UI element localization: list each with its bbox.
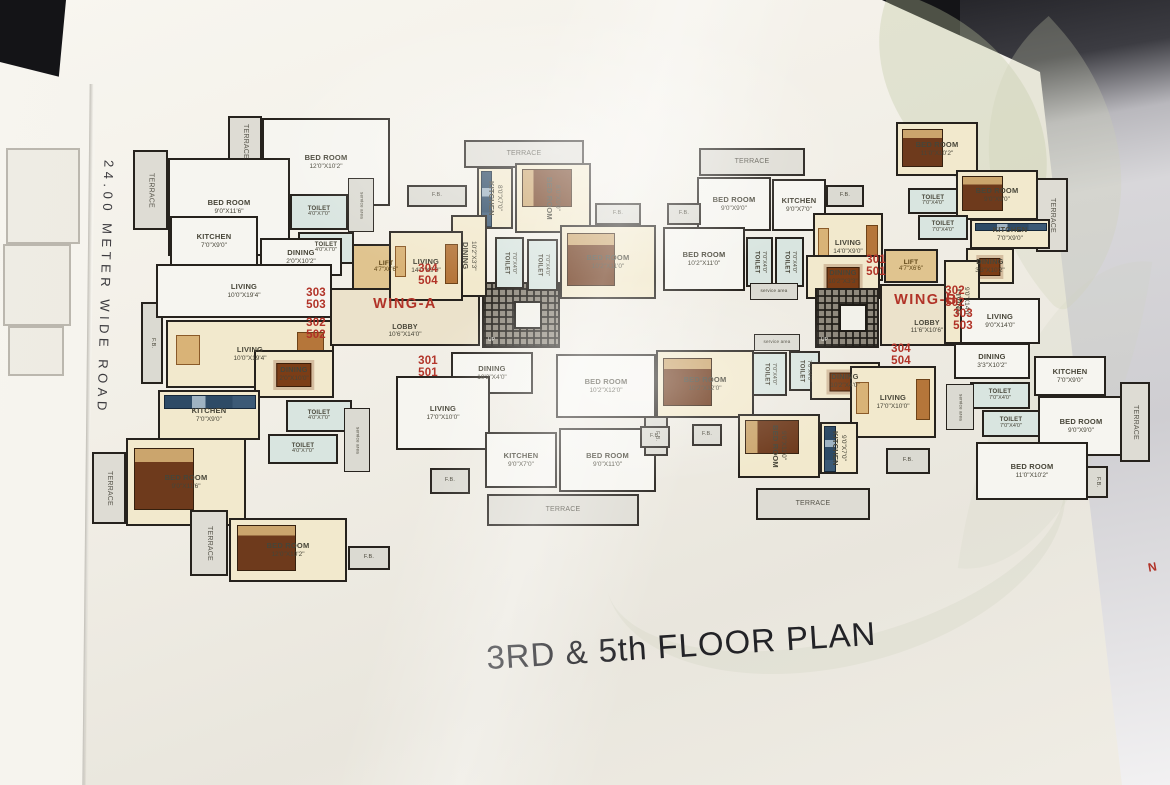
room-kitchen: KITCHEN9'0"X7'0" xyxy=(820,422,858,474)
room-kitchen-dims: 7'0"X9'0" xyxy=(196,416,222,423)
room-dining-label: DINING xyxy=(287,249,314,257)
balcony-fb: F.B. xyxy=(692,424,722,446)
flat-number: 301 501 xyxy=(856,252,896,280)
room-bedroom-label: BED ROOM xyxy=(684,376,727,384)
room-bedroom-label: BED ROOM xyxy=(208,199,251,207)
room-living: LIVING17'0"X10'0" xyxy=(396,376,490,450)
room-kitchen-label: KITCHEN xyxy=(993,226,1028,234)
flat-number: 303 503 xyxy=(294,284,338,314)
flat-number-label: 301 501 xyxy=(418,355,438,380)
room-bedroom-label: BED ROOM xyxy=(976,187,1019,195)
toilet: TOILET7'0"X4'0" xyxy=(908,188,958,214)
room-bedroom: BED ROOM9'0"X11'6" xyxy=(126,438,246,526)
toilet-label: TOILET xyxy=(753,251,759,273)
room-living-dims: 10'0"X19'4" xyxy=(227,292,260,299)
staircase: UP xyxy=(815,288,879,348)
balcony-fb: F.B. xyxy=(430,468,470,494)
room-dining-dims: 2'0"X10'0" xyxy=(279,375,309,382)
room-bedroom-label: BED ROOM xyxy=(587,254,630,262)
toilet-dims: 7'0"X4'0" xyxy=(932,228,954,234)
room-living-label: LIVING xyxy=(880,394,906,402)
service-area: service area xyxy=(750,283,798,300)
lobby-dims: 10'6"X14'0" xyxy=(388,331,421,338)
toilet-dims: 7'0"X4'0" xyxy=(543,254,549,276)
room-bedroom: BED ROOM9'0"X9'0" xyxy=(956,170,1038,220)
room-dining: DINING3'3"X10'2" xyxy=(954,343,1030,379)
terrace-label: TERRACE xyxy=(1048,198,1056,233)
room-kitchen-dims: 9'0"X7'0" xyxy=(840,435,847,461)
terrace-label: TERRACE xyxy=(205,526,213,561)
toilet-dims: 4'0"X7'0" xyxy=(308,212,330,218)
terrace-label: TERRACE xyxy=(241,124,249,159)
balcony-fb: F.B. xyxy=(640,426,670,448)
terrace: TERRACE xyxy=(1120,382,1150,462)
room-living-dims: 9'0"X14'0" xyxy=(985,322,1015,329)
room-bedroom-dims: 9'0"X9'0" xyxy=(1068,427,1094,434)
terrace-label: TERRACE xyxy=(546,506,581,514)
service-area-label: service area xyxy=(355,427,360,454)
room-bedroom: BED ROOM9'0"X11'0" xyxy=(738,414,820,478)
room-dining-label: DINING xyxy=(976,258,1003,266)
room-living-dims: 17'0"X10'0" xyxy=(426,414,459,421)
balcony-fb-label: F.B. xyxy=(445,478,455,484)
service-area-label: service area xyxy=(359,192,364,219)
room-living-dims: 10'0"X19'4" xyxy=(233,355,266,362)
flat-number: 304 504 xyxy=(882,342,920,368)
room-dining-label: DINING xyxy=(461,242,469,269)
room-bedroom-dims: 11'0"X10'2" xyxy=(921,150,954,157)
room-bedroom-label: BED ROOM xyxy=(916,141,959,149)
balcony-fb-label: F.B. xyxy=(840,193,850,199)
balcony-fb-label: F.B. xyxy=(1094,477,1100,487)
balcony-fb-label: F.B. xyxy=(903,458,913,464)
room-dining-label: DINING xyxy=(978,353,1005,361)
room-bedroom-dims: 11'0"X10'2" xyxy=(1016,472,1049,479)
room-bedroom: BED ROOM10'2"X12'0" xyxy=(556,354,656,418)
service-area-label: service area xyxy=(958,394,963,421)
balcony-fb-label: F.B. xyxy=(702,432,712,438)
room-kitchen-label: KITCHEN xyxy=(782,197,817,205)
room-bedroom-label: BED ROOM xyxy=(1011,463,1054,471)
room-dining-dims: 10'2"X4'0" xyxy=(830,382,860,389)
room-kitchen-dims: 9'0"X7'0" xyxy=(786,206,812,213)
room-kitchen: KITCHEN7'0"X9'0" xyxy=(170,216,258,266)
room-bedroom: BED ROOM10'2"X12'0" xyxy=(656,350,754,418)
balcony-fb-label: F.B. xyxy=(149,338,155,348)
flat-number: 304 504 xyxy=(406,260,450,290)
room-living-label: LIVING xyxy=(237,346,263,354)
room-kitchen-label: KITCHEN xyxy=(504,452,539,460)
room-kitchen-dims: 7'0"X9'0" xyxy=(1057,377,1083,384)
lift-label: LIFT xyxy=(904,259,919,266)
terrace-label: TERRACE xyxy=(147,173,155,208)
room-kitchen-dims: 7'0"X9'0" xyxy=(201,242,227,249)
lift-dims: 4'7"X6'6" xyxy=(374,267,398,273)
room-bedroom-dims: 9'0"X11'0" xyxy=(780,431,787,460)
room-bedroom-label: BED ROOM xyxy=(1060,418,1103,426)
toilet-label: TOILET xyxy=(536,254,542,276)
flat-number-label: 301 501 xyxy=(866,254,886,279)
balcony-fb: F.B. xyxy=(407,185,467,207)
service-area-label: service area xyxy=(761,289,788,294)
toilet-dims: 7'0"X4'0" xyxy=(805,360,811,382)
room-kitchen: KITCHEN9'0"X7'0" xyxy=(485,432,557,488)
room-bedroom-dims: 12'0"X10'2" xyxy=(309,163,342,170)
room-living-label: LIVING xyxy=(430,405,456,413)
terrace: TERRACE xyxy=(133,150,168,230)
staircase: UP xyxy=(482,282,560,348)
room-bedroom: BED ROOM12'0"X10'2" xyxy=(229,518,347,582)
room-kitchen-label: KITCHEN xyxy=(831,431,839,466)
balcony-fb: F.B. xyxy=(826,185,864,207)
toilet-dims: 4'0"X7'0" xyxy=(308,416,330,422)
balcony-fb: F.B. xyxy=(595,203,641,225)
room-dining-dims: 2'0"X10'2" xyxy=(286,258,316,265)
room-kitchen-label: KITCHEN xyxy=(1053,368,1088,376)
staircase-label: UP xyxy=(488,338,495,343)
balcony-fb: F.B. xyxy=(667,203,701,225)
terrace-label: TERRACE xyxy=(735,158,770,166)
toilet: TOILET7'0"X4'0" xyxy=(775,237,804,287)
room-bedroom-label: BED ROOM xyxy=(267,542,310,550)
service-area: service area xyxy=(348,178,374,232)
toilet: TOILET4'0"X7'0" xyxy=(268,434,338,464)
toilet-dims: 7'0"X4'0" xyxy=(1000,424,1022,430)
terrace-label: TERRACE xyxy=(796,500,831,508)
flat-number: 302 502 xyxy=(294,314,338,344)
flat-number-label: 304 504 xyxy=(418,263,438,288)
room-living-label: LIVING xyxy=(987,313,1013,321)
balcony-fb-label: F.B. xyxy=(650,434,660,440)
terrace-label: TERRACE xyxy=(1131,405,1139,440)
room-kitchen-dims: 7'0"X9'0" xyxy=(997,235,1023,242)
room-dining-label: DINING xyxy=(831,373,858,381)
toilet: TOILET7'0"X4'0" xyxy=(918,215,968,240)
lobby-label: LOBBY xyxy=(392,324,418,332)
room-kitchen-label: KITCHEN xyxy=(197,233,232,241)
room-bedroom-dims: 9'0"X9'0" xyxy=(984,196,1010,203)
lobby: LOBBY10'6"X14'0" xyxy=(336,318,474,344)
room-bedroom-dims: 10'2"X11'0" xyxy=(592,263,625,270)
terrace: TERRACE xyxy=(190,510,228,576)
room-bedroom: BED ROOM10'2"X11'0" xyxy=(560,225,656,299)
room-bedroom-label: BED ROOM xyxy=(586,452,629,460)
terrace-label: TERRACE xyxy=(507,150,542,158)
flat-number: 303 503 xyxy=(944,307,982,333)
toilet-dims: 4'0"X7'0" xyxy=(315,248,337,254)
toilet: TOILET7'0"X4'0" xyxy=(527,239,558,291)
room-bedroom-dims: 9'0"X9'0" xyxy=(721,205,747,212)
toilet: TOILET4'0"X7'0" xyxy=(290,194,348,230)
room-bedroom: BED ROOM9'0"X9'0" xyxy=(697,177,771,231)
room-living-dims: 17'0"X10'0" xyxy=(876,403,909,410)
lift-label: LIFT xyxy=(379,260,394,267)
balcony-fb: F.B. xyxy=(886,448,930,474)
balcony-fb-label: F.B. xyxy=(364,555,374,561)
terrace: TERRACE xyxy=(756,488,870,520)
flat-number-label: 302 502 xyxy=(306,317,326,342)
room-bedroom: BED ROOM11'0"X10'2" xyxy=(976,442,1088,500)
flat-number-label: 303 503 xyxy=(306,287,326,312)
room-dining-dims: 3'3"X10'2" xyxy=(975,267,1005,274)
toilet-label: TOILET xyxy=(763,363,769,385)
toilet-dims: 7'0"X4'0" xyxy=(922,201,944,207)
toilet: TOILET7'0"X4'0" xyxy=(746,237,773,287)
flat-number: 301 501 xyxy=(406,352,450,382)
room-bedroom-dims: 10'2"X12'0" xyxy=(688,385,721,392)
room-bedroom-dims: 9'0"X11'0" xyxy=(593,461,622,468)
toilet-label: TOILET xyxy=(503,252,509,274)
balcony-fb-label: F.B. xyxy=(613,211,623,217)
staircase-label: UP xyxy=(821,338,828,343)
room-living-label: LIVING xyxy=(231,283,257,291)
room-bedroom-dims: 9'0"X11'6" xyxy=(171,483,200,490)
room-bedroom: BED ROOM10'2"X11'0" xyxy=(663,227,745,291)
service-area: service area xyxy=(946,384,974,430)
toilet-dims: 7'0"X4'0" xyxy=(510,252,516,274)
lift-dims: 4'7"X6'6" xyxy=(899,266,923,272)
room-bedroom-label: BED ROOM xyxy=(771,425,779,468)
room-dining-dims: 10'2"X4'0" xyxy=(477,374,507,381)
room-kitchen: KITCHEN7'0"X9'0" xyxy=(1034,356,1106,396)
room-bedroom-label: BED ROOM xyxy=(585,378,628,386)
toilet-dims: 4'0"X7'0" xyxy=(292,449,314,455)
room-dining-dims: 3'3"X10'2" xyxy=(977,362,1007,369)
toilet: TOILET7'0"X4'0" xyxy=(982,410,1040,437)
room-bedroom-dims: 12'0"X10'2" xyxy=(271,551,304,558)
toilet: TOILET4'0"X7'0" xyxy=(286,400,352,432)
room-bedroom-label: BED ROOM xyxy=(713,196,756,204)
toilet: TOILET7'0"X4'0" xyxy=(495,237,524,289)
room-kitchen: KITCHEN7'0"X9'0" xyxy=(970,219,1050,249)
balcony-fb-label: F.B. xyxy=(432,193,442,199)
toilet-dims: 7'0"X4'0" xyxy=(790,251,796,273)
room-kitchen-label: KITCHEN xyxy=(192,407,227,415)
balcony-fb: F.B. xyxy=(1086,466,1108,498)
room-dining-label: DINING xyxy=(829,269,856,277)
room-bedroom: BED ROOM8'0"X9'0" xyxy=(515,163,591,233)
toilet-dims: 7'0"X4'0" xyxy=(760,251,766,273)
room-bedroom-dims: 10'2"X11'0" xyxy=(688,260,721,267)
toilet: TOILET7'0"X4'0" xyxy=(970,382,1030,409)
room-dining-label: DINING xyxy=(280,366,307,374)
room-bedroom-dims: 9'0"X11'6" xyxy=(214,208,243,215)
toilet-label: TOILET xyxy=(798,360,804,382)
toilet: TOILET7'0"X4'0" xyxy=(752,352,787,396)
room-kitchen-dims: 8'0"X7'0" xyxy=(496,185,503,211)
room-bedroom-label: BED ROOM xyxy=(165,474,208,482)
flat-number-label: 304 504 xyxy=(891,343,911,368)
balcony-fb-label: F.B. xyxy=(679,211,689,217)
room-bedroom-dims: 8'0"X9'0" xyxy=(554,185,561,211)
terrace: TERRACE xyxy=(487,494,639,526)
flat-number-label: 303 503 xyxy=(953,308,973,333)
room-living-label: LIVING xyxy=(835,239,861,247)
lobby-dims: 11'6"X10'6" xyxy=(911,327,944,334)
room-kitchen: KITCHEN7'0"X9'0" xyxy=(158,390,260,440)
room-bedroom-label: BED ROOM xyxy=(545,177,553,220)
room-bedroom: BED ROOM11'0"X10'2" xyxy=(896,122,978,176)
terrace: TERRACE xyxy=(699,148,805,176)
service-area-label: service area xyxy=(764,340,791,345)
toilet-dims: 7'0"X4'0" xyxy=(770,363,776,385)
toilet-dims: 7'0"X4'0" xyxy=(989,396,1011,402)
room-living: LIVING17'0"X10'0" xyxy=(850,366,936,438)
room-dining-dims: 10'2"X3'3" xyxy=(470,241,477,271)
flat-number-label: 302 502 xyxy=(945,285,965,310)
room-bedroom-label: BED ROOM xyxy=(683,251,726,259)
balcony-fb: F.B. xyxy=(348,546,390,570)
room-dining-dims: 10'2"X3'3" xyxy=(828,278,858,285)
service-area: service area xyxy=(344,408,370,472)
room-kitchen-dims: 9'0"X7'0" xyxy=(508,461,534,468)
room-dining-label: DINING xyxy=(478,365,505,373)
room-bedroom-label: BED ROOM xyxy=(305,154,348,162)
room-bedroom-dims: 10'2"X12'0" xyxy=(589,387,622,394)
lobby-label: LOBBY xyxy=(914,320,940,328)
service-area: service area xyxy=(754,334,800,351)
room-kitchen-label: KITCHEN xyxy=(487,181,495,216)
wing-title-label: WING-A xyxy=(373,297,437,313)
toilet-label: TOILET xyxy=(783,251,789,273)
